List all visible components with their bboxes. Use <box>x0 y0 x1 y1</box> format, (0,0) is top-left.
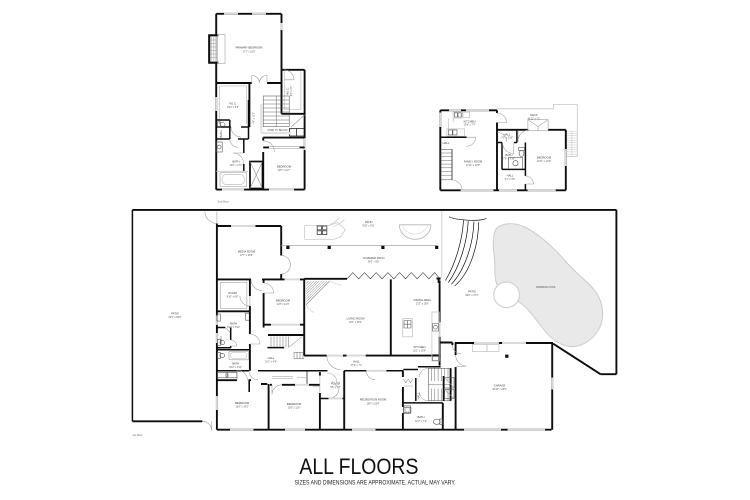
svg-text:26'1" x 25'1": 26'1" x 25'1" <box>349 321 362 324</box>
svg-text:12'11" x 10'9": 12'11" x 10'9" <box>537 160 551 163</box>
svg-text:13'2" x 15'8": 13'2" x 15'8" <box>416 303 429 306</box>
svg-text:36'10" x 24'9": 36'10" x 24'9" <box>492 388 507 391</box>
svg-text:BATH: BATH <box>230 322 237 326</box>
svg-text:86'6" x 37'1": 86'6" x 37'1" <box>465 294 478 297</box>
svg-text:HALL: HALL <box>443 141 450 145</box>
svg-text:BATH: BATH <box>232 361 239 365</box>
svg-text:BEDROOM: BEDROOM <box>235 401 250 405</box>
svg-text:10'2" x 16'9": 10'2" x 16'9" <box>413 350 426 353</box>
svg-text:17'7" x 15'5": 17'7" x 15'5" <box>242 50 255 53</box>
svg-text:PATIO: PATIO <box>171 312 179 316</box>
svg-text:BATH: BATH <box>219 130 223 137</box>
svg-text:4'4" x 12'3": 4'4" x 12'3" <box>253 112 256 124</box>
svg-text:1st floor: 1st floor <box>132 433 142 437</box>
svg-text:FAMILY ROOM: FAMILY ROOM <box>464 160 483 164</box>
svg-text:13'6" x 14'2": 13'6" x 14'2" <box>236 406 249 409</box>
svg-text:COVERED PATIO: COVERED PATIO <box>363 256 385 260</box>
svg-text:MEDIA ROOM: MEDIA ROOM <box>238 250 256 254</box>
svg-text:ROOM: ROOM <box>228 291 237 295</box>
svg-text:HALL: HALL <box>504 132 511 136</box>
svg-text:27'6" x 7'1": 27'6" x 7'1" <box>351 364 363 367</box>
svg-text:15'1" x 4'9": 15'1" x 4'9" <box>265 361 277 364</box>
svg-text:17'7" x 18'8": 17'7" x 18'8" <box>240 254 253 257</box>
svg-text:BEDROOM: BEDROOM <box>277 165 292 169</box>
svg-text:HALL: HALL <box>353 359 360 363</box>
svg-text:PATIO: PATIO <box>365 220 373 224</box>
svg-text:2nd floor: 2nd floor <box>218 200 229 204</box>
svg-text:8'5" x 4'7": 8'5" x 4'7" <box>290 86 293 97</box>
svg-text:10'8" x 7'4": 10'8" x 7'4" <box>464 124 476 127</box>
svg-text:9'26" x 9'11": 9'26" x 9'11" <box>362 225 375 228</box>
svg-text:BEDROOM: BEDROOM <box>276 299 291 303</box>
svg-text:RECREATION ROOM: RECREATION ROOM <box>360 398 387 402</box>
svg-text:12'2" x 7'9": 12'2" x 7'9" <box>415 420 427 423</box>
svg-text:11'8" x 11'7": 11'8" x 11'7" <box>278 169 291 172</box>
svg-text:W.I.C.: W.I.C. <box>286 87 290 95</box>
svg-text:8'10" x 5'10": 8'10" x 5'10" <box>227 326 240 329</box>
svg-text:BATH: BATH <box>233 160 240 164</box>
svg-text:13'8" x 11'6": 13'8" x 11'6" <box>288 407 301 410</box>
svg-text:7'9" x 9'10": 7'9" x 9'10" <box>503 158 515 161</box>
svg-text:8'10" x 8'6": 8'10" x 8'6" <box>227 296 239 299</box>
svg-text:SWIMMING POOL: SWIMMING POOL <box>536 286 557 289</box>
svg-text:LIVING ROOM: LIVING ROOM <box>347 316 366 320</box>
svg-text:6'5" x 7'7": 6'5" x 7'7" <box>330 386 341 389</box>
svg-text:KITCHEN: KITCHEN <box>414 345 426 349</box>
svg-text:8'10" x 5'6": 8'10" x 5'6" <box>227 106 239 109</box>
svg-text:34'11" x 7'1": 34'11" x 7'1" <box>528 118 541 121</box>
svg-text:HALL: HALL <box>417 392 421 399</box>
svg-text:GARAGE: GARAGE <box>494 384 506 388</box>
svg-text:34'5" x 9'5": 34'5" x 9'5" <box>368 261 380 264</box>
svg-text:PATIO: PATIO <box>468 290 476 294</box>
svg-text:PRIMARY BEDROOM: PRIMARY BEDROOM <box>236 46 264 50</box>
svg-text:BATH: BATH <box>418 415 425 419</box>
svg-text:11'8" x 12'3": 11'8" x 12'3" <box>277 303 290 306</box>
svg-text:7'3" x 3'10": 7'3" x 3'10" <box>501 137 513 140</box>
svg-text:DINING AREA: DINING AREA <box>414 298 432 302</box>
svg-text:SIZES AND DIMENSIONS ARE APPRO: SIZES AND DIMENSIONS ARE APPROXIMATE, AC… <box>295 479 456 486</box>
svg-text:ALL FLOORS: ALL FLOORS <box>299 454 418 479</box>
svg-text:23'9" x 59'9": 23'9" x 59'9" <box>168 316 181 319</box>
svg-text:17'11" x 10'8": 17'11" x 10'8" <box>466 164 480 167</box>
svg-text:15'8" x 18'4": 15'8" x 18'4" <box>366 402 379 405</box>
svg-text:BATH: BATH <box>506 153 513 157</box>
svg-text:6'1" x 3'5": 6'1" x 3'5" <box>505 178 516 181</box>
svg-text:BEDROOM: BEDROOM <box>287 402 302 406</box>
svg-text:DECK: DECK <box>530 113 538 117</box>
svg-text:OPEN TO BELOW: OPEN TO BELOW <box>268 129 289 132</box>
svg-text:HALL: HALL <box>268 356 275 360</box>
svg-text:W.I.C.: W.I.C. <box>229 102 237 106</box>
svg-text:BEDROOM: BEDROOM <box>537 156 552 160</box>
svg-text:KITCHEN: KITCHEN <box>464 119 476 123</box>
svg-text:8'10" x 6'11": 8'10" x 6'11" <box>229 366 242 369</box>
svg-text:BATH: BATH <box>219 336 223 343</box>
svg-text:HALL: HALL <box>507 174 514 178</box>
svg-text:12'6" x 17'1": 12'6" x 17'1" <box>229 164 242 167</box>
